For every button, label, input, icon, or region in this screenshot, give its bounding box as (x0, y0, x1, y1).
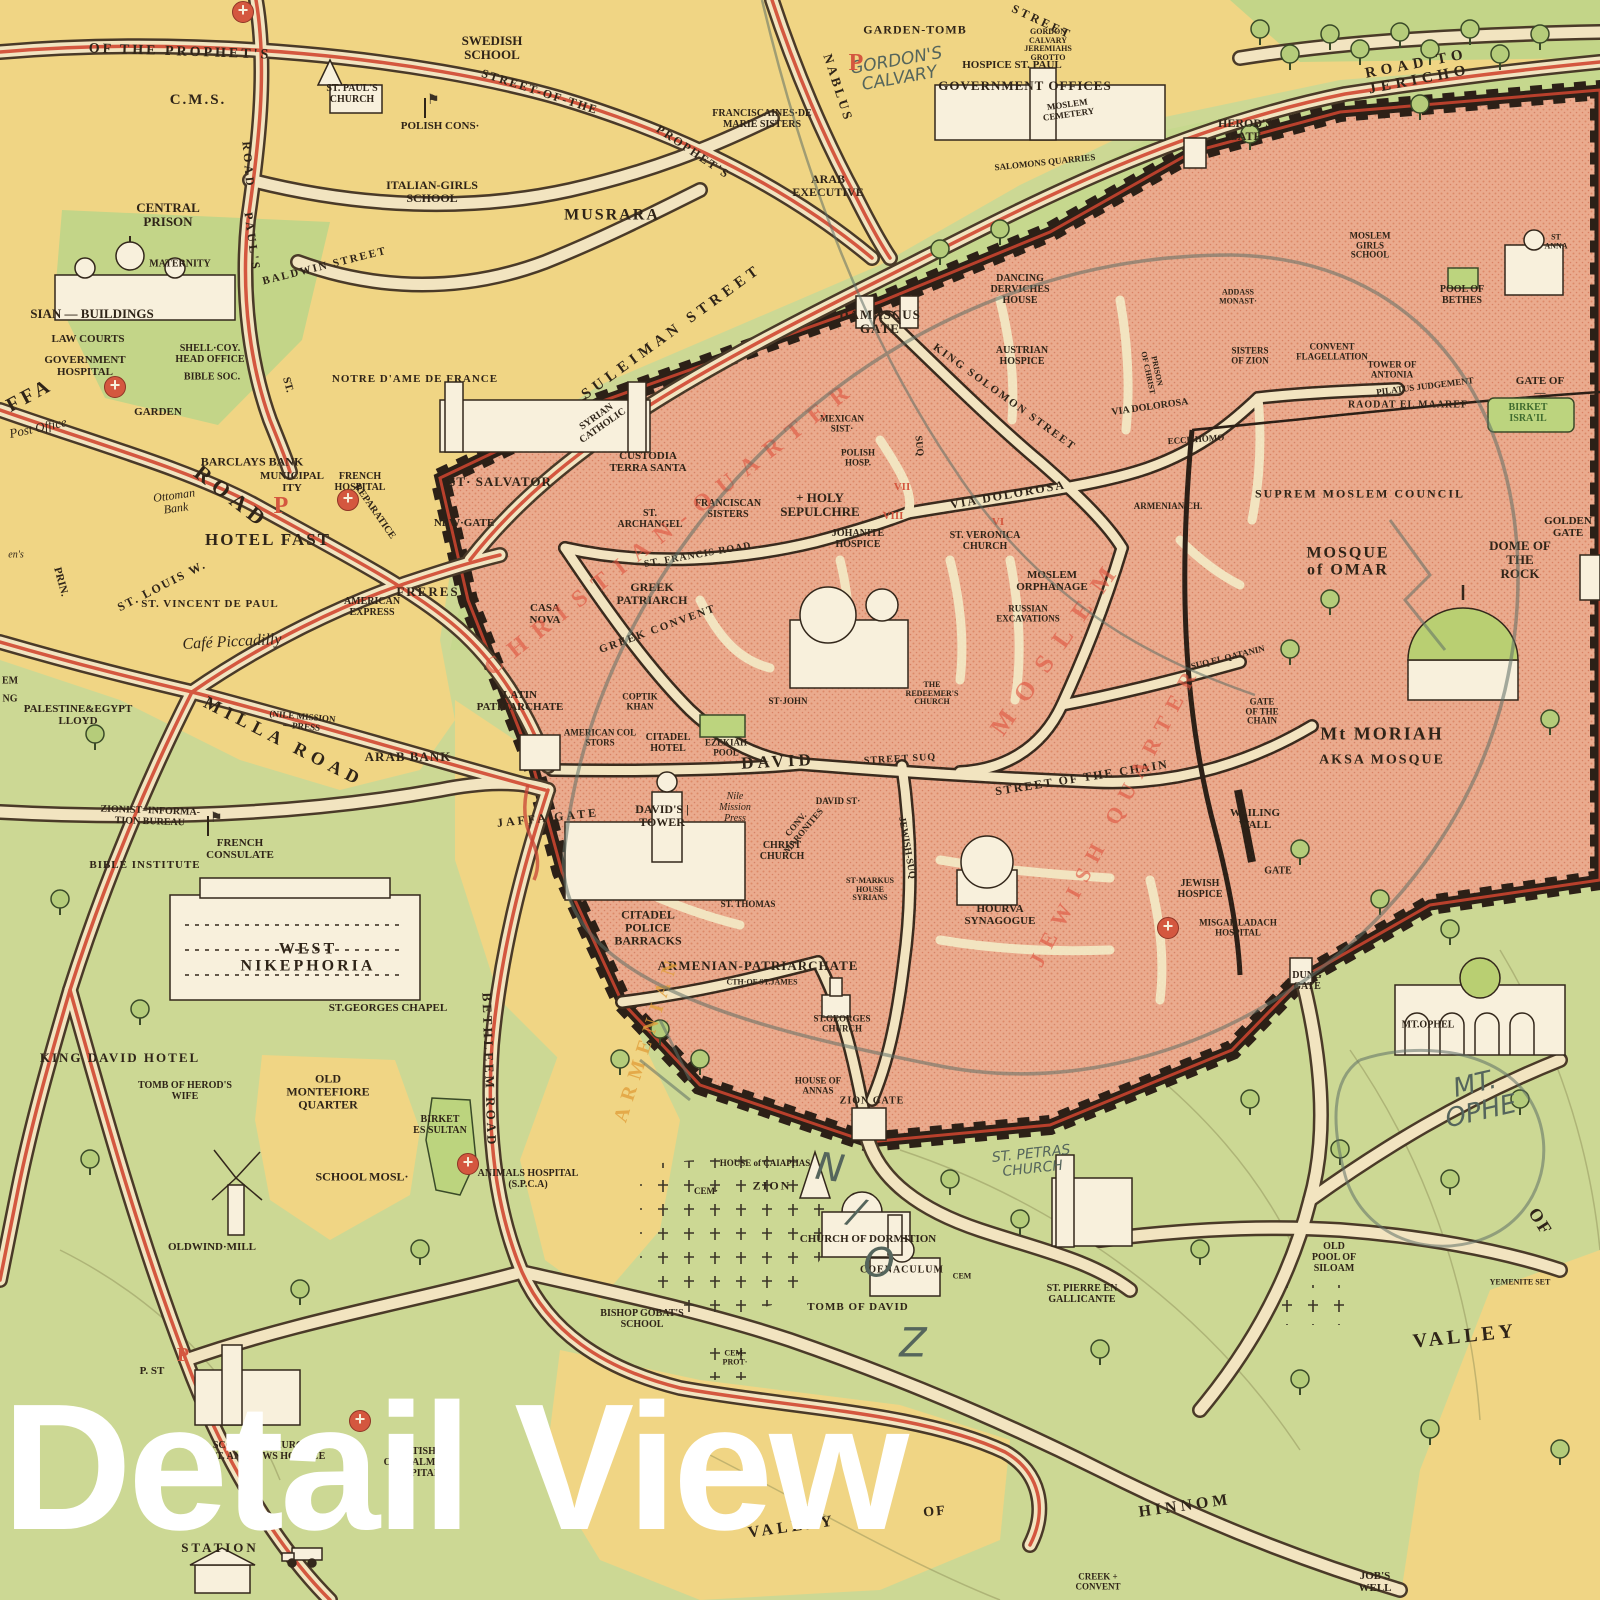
map-label: KING SOLOMON STREET (930, 342, 1078, 454)
map-label: NG (3, 695, 18, 706)
map-label: AKSA MOSQUE (1319, 752, 1445, 767)
map-label: FFA (3, 375, 57, 417)
map-label: CEM (953, 1273, 972, 1282)
map-label: BIBLE INSTITUTE (89, 860, 200, 872)
map-label: POLISH HOSP. (841, 448, 875, 467)
map-label: ST. VINCENT DE PAUL (141, 599, 278, 611)
map-label: CEM· PROT· (723, 1349, 748, 1366)
map-label: GOVERNMENT OFFICES (938, 79, 1111, 93)
map-label: MOSLEM GIRLS SCHOOL (1349, 231, 1390, 260)
map-label: VIA DOLOROSA (949, 478, 1067, 511)
map-label: Post Office (8, 415, 68, 441)
map-label: ROAD (239, 141, 256, 189)
map-label: ST· SALVATOR (448, 475, 552, 489)
map-label: C.M.S. (170, 92, 227, 108)
map-label: DAMASCUS GATE (839, 308, 921, 336)
map-label: ST. ARCHANGEL (617, 509, 682, 531)
map-label: OF THE PROPHET'S (88, 41, 271, 62)
map-label: Café Piccadilly (182, 631, 282, 653)
map-label: STREET SUQ (864, 753, 937, 768)
map-label: EZEKIAH POOL (705, 738, 747, 757)
map-label: KING DAVID HOTEL (40, 1051, 200, 1065)
map-label: FRANCISCAINES·DE MARIE SISTERS (712, 109, 811, 131)
map-label: CREEK + CONVENT (1075, 1572, 1120, 1591)
map-label: PALESTINE&EGYPT LLOYD (24, 704, 133, 728)
map-label: AUSTRIAN HOSPICE (996, 346, 1048, 368)
map-label: TOWER OF ANTONIA (1367, 360, 1416, 379)
map-label: LAW COURTS (51, 334, 124, 346)
map-label: Mt MORIAH (1320, 724, 1443, 743)
map-label: ARAB BANK (365, 750, 452, 764)
red-cross-icon (457, 1153, 479, 1175)
map-label: TOMB OF HEROD'S WIFE (138, 1081, 232, 1103)
map-label: OLD MONTEFIORE QUARTER (286, 1073, 369, 1112)
map-label: ROAD (190, 460, 275, 533)
map-label: BARCLAYS BANK (201, 456, 304, 469)
label-layer: OF THE PROPHET'SSTREET-OF-THEPROPHET'SSW… (0, 0, 1600, 1600)
red-cross-icon (104, 376, 126, 398)
map-label: POLISH CONS· (401, 121, 480, 133)
map-label: AMERICAN EXPRESS (344, 597, 400, 619)
map-label: LATIN PATRIARCHATE (477, 690, 564, 714)
flag-icon (424, 98, 440, 118)
map-label: ST.GEORGES CHURCH (813, 1014, 870, 1033)
map-label: GATE OF — (1510, 376, 1570, 400)
map-label: REPARATICE (351, 482, 397, 541)
map-label: HEROD'S GATE (1218, 117, 1272, 143)
map-label: ST. (279, 376, 294, 394)
map-label: FRERES (396, 585, 459, 599)
map-label: en's (8, 551, 23, 562)
map-label: CHURCH OF DORMITION (800, 1234, 936, 1246)
map-label: ARAB EXECUTIVE (792, 173, 863, 199)
map-label: P (274, 494, 289, 520)
map-label: ST. PAUL'S CHURCH (326, 84, 377, 106)
map-label: + HOLY SEPULCHRE (780, 491, 859, 519)
map-label: DOME OF THE ROCK (1480, 539, 1560, 581)
map-label: N (813, 1146, 847, 1191)
red-cross-icon (1157, 917, 1179, 939)
map-label: BISHOP GOBAT'S SCHOOL (600, 1309, 683, 1331)
map-label: GORDON'S CALVARY (849, 44, 947, 96)
map-label: VALLEY (1412, 1321, 1518, 1353)
map-label: JOHANITE HOSPICE (832, 529, 884, 551)
map-label: PAUL'S (241, 211, 262, 272)
map-label: O (863, 1242, 894, 1285)
map-label: POOL OF BETHES (1440, 285, 1484, 307)
map-label: P (177, 1345, 189, 1367)
map-label: ST. FRANCIS ROAD (643, 541, 752, 571)
map-label: DAVID ST· (816, 797, 861, 807)
pictorial-map-jerusalem: OF THE PROPHET'SSTREET-OF-THEPROPHET'SSW… (0, 0, 1600, 1600)
map-label: GATE OF THE CHAIN (1245, 697, 1278, 726)
map-label: ST.GEORGES CHAPEL (329, 1003, 447, 1015)
map-label: DAVID (741, 751, 815, 773)
map-label: GREEK CONVENT (598, 603, 718, 656)
map-label: NABLUS (820, 52, 855, 124)
map-label: CONVENT FLAGELLATION (1296, 342, 1368, 361)
map-label: ST·JOHN (768, 697, 807, 707)
map-label: HOSPICE ST. PAUL (962, 60, 1062, 72)
map-label: SUPREM MOSLEM COUNCIL (1255, 488, 1465, 501)
map-label: GATE (1264, 867, 1292, 878)
map-label: BIRKET ISRA'IL (1509, 403, 1548, 425)
map-label: DUNG GATE (1292, 971, 1321, 993)
map-label: JOB'S WELL (1358, 1571, 1391, 1595)
map-label: MOSLEM CEMETERY (1041, 97, 1095, 123)
map-label: BIRKET ES SULTAN (413, 1115, 467, 1137)
map-label: GOLDEN GATE (1544, 516, 1592, 540)
map-label: ZION GATE (840, 1097, 905, 1108)
map-label: HOTEL FAST (205, 531, 331, 549)
map-label: MILLA ROAD (201, 693, 368, 791)
map-label: ST ANNA (1544, 233, 1567, 250)
map-label: WEST NIKEPHORIA (241, 941, 376, 976)
map-label: Z (899, 1322, 926, 1365)
map-label: PRISON OF CHRIST (1139, 349, 1165, 395)
map-label: MOSQUE of OMAR (1306, 545, 1389, 580)
map-label: CHRIST CHURCH (760, 841, 804, 863)
map-label: NEW·GATE (434, 518, 494, 530)
flag-icon (207, 816, 223, 836)
map-label: P (849, 51, 864, 77)
map-label: COENACULUM (860, 1266, 944, 1277)
map-label: SHELL·COY. HEAD OFFICE (175, 344, 244, 366)
map-label: ECCE HOMO (1167, 433, 1224, 447)
map-label: PROPHET'S (654, 123, 733, 182)
map-label: ADDASS MONAST· (1219, 288, 1257, 305)
map-label: CITADEL POLICE BARRACKS (614, 909, 681, 948)
map-label: ST. PETRAS CHURCH (991, 1143, 1072, 1181)
map-label: GARDEN (134, 407, 182, 419)
map-label: MT. OPHE (1412, 1057, 1544, 1139)
red-cross-icon (337, 489, 359, 511)
map-label: STREET (1010, 2, 1075, 41)
map-label: Ottoman Bank (152, 486, 197, 517)
map-label: GOVERNMENT HOSPITAL (44, 355, 125, 379)
map-label: ARMENIAN (611, 951, 686, 1125)
map-label: NOTRE D'AME DE FRANCE (332, 374, 498, 386)
map-label: HOUSE OF ANNAS (795, 1076, 841, 1095)
map-label: BALDWIN STREET (261, 246, 388, 288)
map-label: RUSSIAN EXCAVATIONS (996, 604, 1060, 623)
map-label: CTH·OF ST.JAMES (726, 979, 797, 988)
map-label: MOSLEM ORPHANAGE (1016, 570, 1088, 594)
map-label: HINNOM (1138, 1491, 1233, 1521)
map-label: DAVID'S | TOWER (635, 803, 688, 829)
map-label: PILATUS JUDGEMENT (1376, 376, 1475, 398)
map-label: CEM· (694, 1187, 718, 1197)
map-label: MEXICAN SIST· (820, 414, 864, 433)
map-label: MUSRARA (564, 206, 660, 223)
map-label: COPTIK KHAN (622, 692, 658, 711)
map-label: ROAD TO JERICHO (1326, 39, 1511, 106)
map-label: DANCING DERVICHES HOUSE (990, 274, 1049, 306)
map-label: FRENCH HOSPITAL (335, 472, 386, 494)
map-label: FRANCISCAN SISTERS (695, 499, 761, 521)
map-label: ST. PIERRE EN GALLICANTE (1047, 1284, 1118, 1306)
map-label: SULEIMAN STREET (579, 261, 766, 403)
map-label: SYRIAN CATHOLIC (572, 398, 628, 447)
map-label: CHRISTIAN-QUARTER (480, 374, 864, 682)
map-label: FRENCH CONSULATE (206, 838, 274, 862)
map-label: ZION (753, 1180, 792, 1193)
map-label: SUQ (912, 435, 925, 456)
map-label: SCHOOL MOSL· (315, 1171, 408, 1184)
map-label: MISGAB LADACH HOSPITAL (1199, 918, 1277, 937)
map-label: PRIN. (50, 566, 69, 598)
map-label: ST. THOMAS (721, 900, 776, 910)
map-label: GARDEN-TOMB (863, 24, 966, 37)
map-label: ARMENIAN-PATRIARCHATE (658, 959, 859, 973)
map-label: / (845, 1193, 867, 1234)
map-label: MT.OPHEL (1402, 1021, 1455, 1032)
map-label: WAILING WALL (1230, 808, 1280, 832)
map-label: BIBLE SOC. (184, 373, 240, 384)
map-label: MOSLEM (985, 549, 1131, 741)
map-label: ST·MARKUS HOUSE SYRIANS (846, 877, 894, 903)
map-label: MATERNITY (149, 260, 210, 271)
map-label: OLD POOL OF SILOAM (1312, 1242, 1356, 1274)
map-label: THE REDEEMER'S CHURCH (906, 681, 959, 707)
map-label: AMERICAN COL STORS (564, 728, 636, 747)
map-label: SISTERS OF ZION (1231, 346, 1268, 365)
map-label: TOMB OF DAVID (807, 1302, 908, 1314)
map-label: HOURVA SYNAGOGUE (965, 904, 1036, 928)
map-label: EM (2, 677, 18, 688)
map-label: CASA NOVA (530, 603, 561, 627)
map-label: JAFFA GATE (496, 806, 599, 830)
map-label: SALOMONS QUARRIES (994, 153, 1096, 173)
map-label: ST. VERONICA CHURCH (950, 531, 1021, 553)
map-label: JEWISH HOSPICE (1177, 879, 1222, 901)
map-label: CONV. MARONITES (775, 800, 826, 855)
map-label: ZIONIST=INFORMA- TION BUREAU (100, 804, 200, 829)
map-label: OF (1524, 1205, 1556, 1240)
map-label: STREET-OF-THE (480, 67, 600, 117)
map-label: OF (923, 1503, 948, 1520)
map-label: GORDON CALVARY JEREMIAHS GROTTO (1024, 28, 1072, 63)
map-label: Nile Mission Press (719, 792, 751, 824)
map-label: VI (992, 517, 1004, 529)
map-label: VII (894, 482, 911, 494)
map-label: ANIMALS HOSPITAL (S.P.C.A) (478, 1169, 579, 1191)
map-label: RAODAT EL MAAREF (1348, 401, 1468, 412)
map-label: YEMENITE SET (1490, 1279, 1551, 1288)
map-label: CITADEL HOTEL (646, 733, 691, 755)
map-label: ITALIAN-GIRLS SCHOOL (386, 179, 478, 205)
map-label: VIII (883, 511, 904, 523)
map-label: SIAN — BUILDINGS (30, 307, 154, 321)
map-label: CENTRAL PRISON (136, 201, 200, 229)
map-label: HOUSE of CAIAPHAS (720, 1159, 811, 1169)
map-label: ARMENIAN CH. (1134, 502, 1203, 512)
red-cross-icon (232, 1, 254, 23)
map-label: OLDWIND·MILL (168, 1242, 256, 1254)
map-label: ST. LOUIS W. (115, 558, 208, 614)
map-label: JEWISH QUARTER (1025, 659, 1206, 971)
map-label: MUNICIPAL ITY (260, 471, 324, 495)
map-label: CUSTODIA TERRA SANTA (609, 451, 686, 475)
map-label: JEWISH-SUQ (895, 816, 917, 880)
map-label: STREET OF THE CHAIN (994, 758, 1169, 798)
map-label: SUQ EL QATANIN (1190, 644, 1266, 672)
map-label: VIA DOLOROSA (1111, 397, 1189, 418)
map-label: SWEDISH SCHOOL (462, 34, 523, 62)
detail-view-caption: Detail View (2, 1378, 905, 1558)
map-label: (NILE MISSION —PRESS (268, 709, 336, 734)
map-label: GREEK PATRIARCH (617, 581, 688, 607)
map-label: BETHLEEM ROAD (479, 992, 498, 1147)
